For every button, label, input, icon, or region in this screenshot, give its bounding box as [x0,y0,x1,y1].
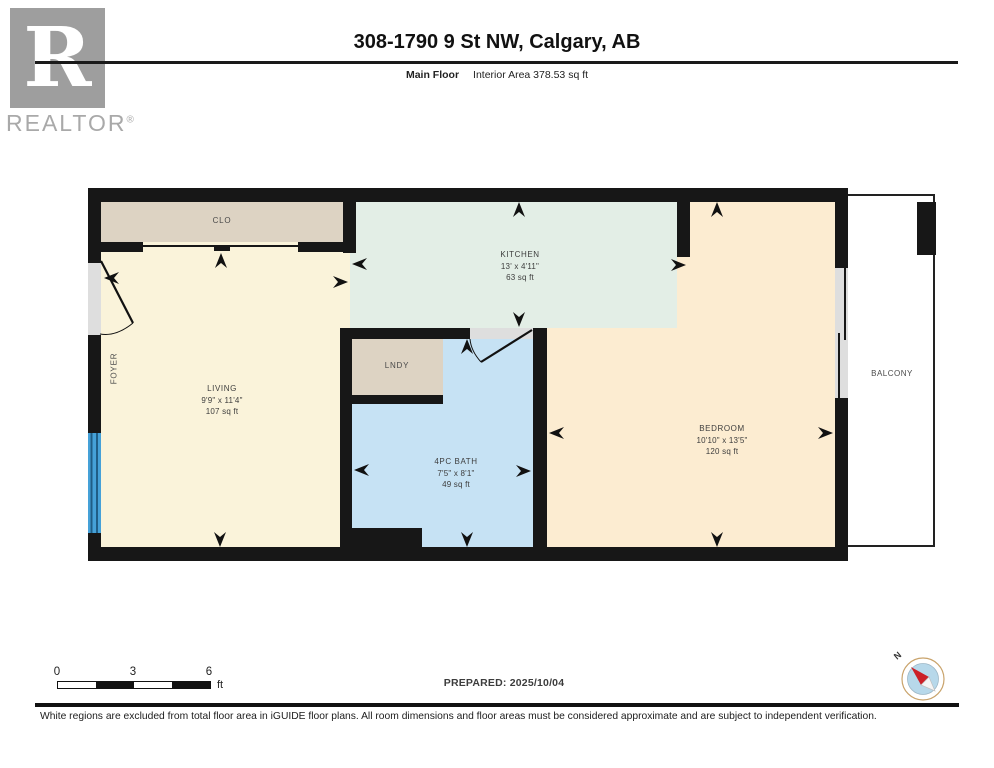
wall-bottom [88,547,848,561]
balcony-sliding-door [835,268,848,398]
living-window [88,433,101,533]
entry-door-opening [88,263,101,335]
bedroom-name: BEDROOM [652,423,792,435]
wall-right-lower [835,398,848,561]
realtor-logo-letter: R [23,17,91,99]
kitchen-name: KITCHEN [450,249,590,261]
floor-name: Main Floor [406,69,459,81]
bedroom-dimensions: 10'10" x 13'5" [652,435,792,447]
compass-needle-north [911,667,929,685]
scale-unit-label: ft [217,679,223,691]
scale-bar [57,681,211,689]
closet-wall-stub-left [101,242,143,252]
living-name: LIVING [152,383,292,395]
kitchen-dimensions: 13' x 4'11" [450,261,590,273]
living-area-value: 107 sq ft [152,406,292,418]
scale-tick-6: 6 [202,666,216,678]
footer-divider [35,703,959,707]
title-divider [35,61,958,64]
bedroom-area-value: 120 sq ft [652,446,792,458]
closet-kitchen-partition [343,188,356,253]
realtor-wordmark-text: REALTOR [6,110,127,136]
balcony-slider-track-1 [844,268,846,340]
bath-name: 4PC BATH [386,456,526,468]
footer-disclaimer: White regions are excluded from total fl… [40,711,960,722]
bath-bottom-left-wall [352,528,422,547]
wall-top [88,188,848,202]
bath-dimensions: 7'5" x 8'1" [386,468,526,480]
balcony-label: BALCONY [847,369,937,378]
scale-tick-3: 3 [126,666,140,678]
closet-slider-handle [214,247,230,251]
bath-left-wall [340,328,352,547]
page-title: 308-1790 9 St NW, Calgary, AB [0,31,994,54]
wall-right-upper [835,188,848,268]
bath-door-opening [470,328,533,339]
interior-area-label: Interior Area 378.53 sq ft [473,69,588,81]
wall-left-middle [88,335,101,433]
closet-wall-stub-right [298,242,343,252]
realtor-wordmark: REALTOR® [6,110,136,137]
living-dimensions: 9'9" x 11'4" [152,395,292,407]
closet-label: CLO [162,216,282,225]
bedroom-label-group: BEDROOM 10'10" x 13'5" 120 sq ft [652,423,792,458]
wall-left-upper [88,188,101,263]
living-label-group: LIVING 9'9" x 11'4" 107 sq ft [152,383,292,418]
balcony-slider-track-2 [838,333,840,398]
compass-icon: N [892,650,944,700]
kitchen-area-value: 63 sq ft [450,272,590,284]
bath-right-wall [533,328,547,547]
realtor-logo-icon: R [10,8,105,108]
kitchen-bedroom-partition [677,188,690,257]
compass-needle-south [921,677,935,691]
registered-mark: ® [127,114,136,125]
foyer-label: FOYER [110,339,119,399]
bath-label-group: 4PC BATH 7'5" x 8'1" 49 sq ft [386,456,526,491]
floorplan-page: R REALTOR® 308-1790 9 St NW, Calgary, AB… [0,0,994,768]
scale-tick-0: 0 [50,666,64,678]
floor-subtitle: Main FloorInterior Area 378.53 sq ft [0,69,994,81]
kitchen-bath-wall [340,328,470,339]
compass-north-label: N [892,650,903,662]
prepared-date-label: PREPARED: 2025/10/04 [404,677,604,689]
balcony-corner-wall [917,202,936,255]
laundry-bottom-wall [340,395,443,404]
bath-area-value: 49 sq ft [386,479,526,491]
kitchen-label-group: KITCHEN 13' x 4'11" 63 sq ft [450,249,590,284]
laundry-label: LNDY [357,361,437,370]
